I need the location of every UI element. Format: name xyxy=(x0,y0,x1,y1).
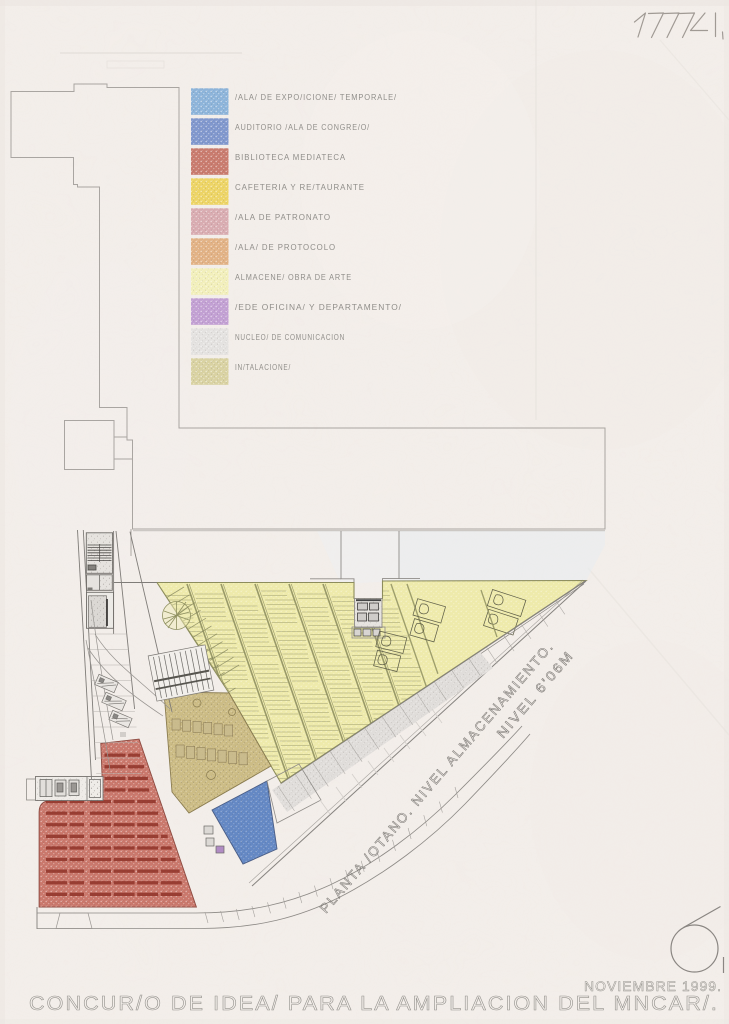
svg-text:AUDITORIO /ALA DE CONGRE/O/: AUDITORIO /ALA DE CONGRE/O/ xyxy=(235,122,370,132)
svg-text:CAFETERIA Y RE/TAURANTE: CAFETERIA Y RE/TAURANTE xyxy=(235,182,365,192)
svg-text:/ALA/ DE EXPO/ICIONE/ TEMPO: /ALA/ DE EXPO/ICIONE/ TEMPORALE/ xyxy=(235,92,397,102)
svg-text:/ALA DE PATRONATO: /ALA DE PATRONATO xyxy=(235,212,331,222)
svg-text:/EDE OFICINA/ Y DEPARTAMENT: /EDE OFICINA/ Y DEPARTAMENTO/ xyxy=(235,302,402,312)
svg-text:/ALA/ DE PROTOCOLO: /ALA/ DE PROTOCOLO xyxy=(235,242,336,252)
svg-text:CONCUR/O DE IDEA/ PARA LA: CONCUR/O DE IDEA/ PARA LA AMPLIACION DEL… xyxy=(29,992,719,1015)
svg-text:IN/TALACIONE/: IN/TALACIONE/ xyxy=(235,362,291,372)
svg-text:ALMACENE/ OBRA DE ARTE: ALMACENE/ OBRA DE ARTE xyxy=(235,272,352,282)
svg-text:NUCLEO/ DE COMUNICACION: NUCLEO/ DE COMUNICACION xyxy=(235,332,345,342)
svg-text:BIBLIOTECA MEDIATECA: BIBLIOTECA MEDIATECA xyxy=(235,152,346,162)
